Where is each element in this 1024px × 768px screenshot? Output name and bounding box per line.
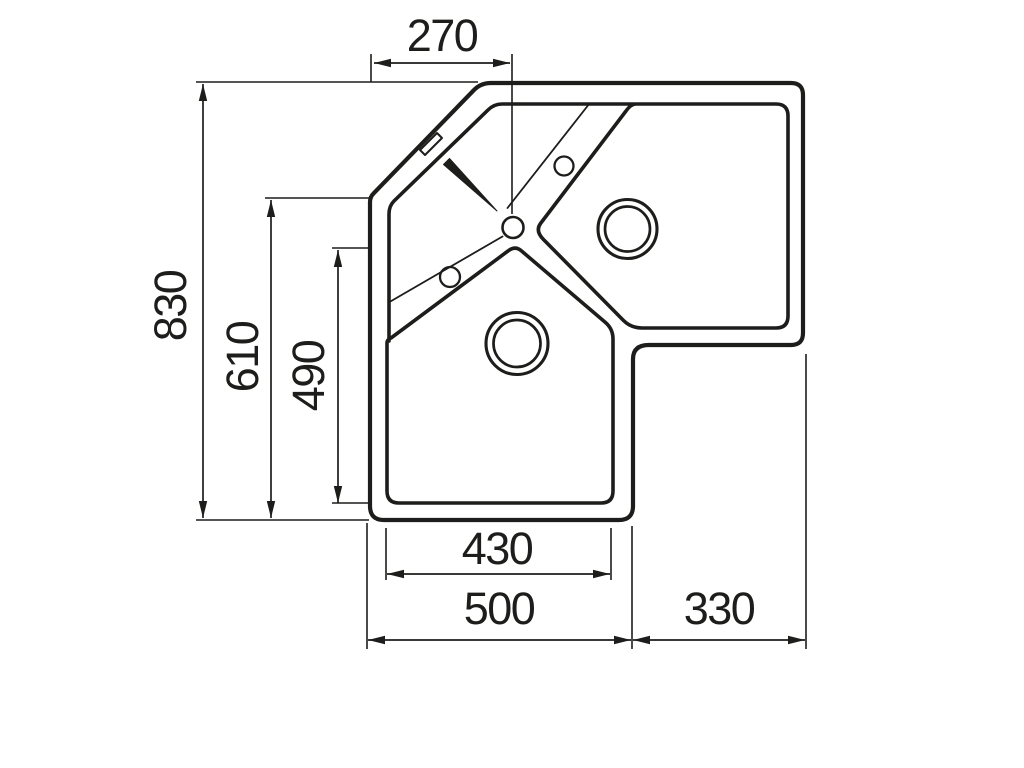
- dim-490-arrow-top: [334, 250, 342, 267]
- right-bowl-outline: [538, 104, 788, 328]
- dimension-500: 500: [368, 583, 631, 644]
- drainer-groove-wedge: [444, 159, 498, 212]
- dim-330-arrow-right: [788, 636, 805, 644]
- dim-610-label: 610: [217, 321, 268, 392]
- dim-330-arrow-left: [633, 636, 650, 644]
- right-bowl-drain-outer: [598, 200, 657, 259]
- center-drain-hole: [503, 217, 524, 238]
- dim-490-arrow-bottom: [334, 486, 342, 503]
- dimension-430: 430: [387, 523, 610, 578]
- bottom-bowl-outline: [387, 248, 613, 503]
- dim-430-arrow-right: [593, 570, 610, 578]
- dim-270-arrow-right: [493, 59, 510, 67]
- dim-610-arrow-bottom: [267, 501, 275, 518]
- dim-430-label: 430: [462, 523, 533, 574]
- dimension-830: 830: [145, 84, 207, 518]
- right-bowl-drain-inner: [605, 207, 650, 252]
- drainer-groove-upper: [508, 104, 590, 209]
- dimension-490: 490: [283, 250, 342, 503]
- dim-490-label: 490: [283, 340, 334, 411]
- dimension-270: 270: [374, 10, 510, 67]
- dim-830-label: 830: [145, 270, 196, 341]
- dim-500-label: 500: [464, 583, 535, 634]
- sink-outer-outline: [370, 83, 803, 520]
- dim-330-label: 330: [684, 583, 755, 634]
- tap-hole-upper: [555, 157, 574, 176]
- sink-body: [370, 83, 803, 520]
- dim-270-label: 270: [407, 10, 478, 61]
- dim-500-arrow-right: [614, 636, 631, 644]
- bottom-bowl-drain-outer: [486, 313, 548, 375]
- dim-610-arrow-top: [267, 200, 275, 217]
- sink-technical-drawing-page: 270 830 610 490 430: [0, 0, 1024, 768]
- dim-830-arrow-top: [199, 84, 207, 101]
- corner-sink-dimension-drawing: 270 830 610 490 430: [0, 0, 1024, 768]
- dim-270-arrow-left: [374, 59, 391, 67]
- dim-830-arrow-bottom: [199, 501, 207, 518]
- dim-500-arrow-left: [368, 636, 385, 644]
- dimension-330: 330: [633, 583, 805, 644]
- dim-430-arrow-left: [387, 570, 404, 578]
- dimension-610: 610: [217, 200, 275, 518]
- bottom-bowl-drain-inner: [494, 320, 541, 367]
